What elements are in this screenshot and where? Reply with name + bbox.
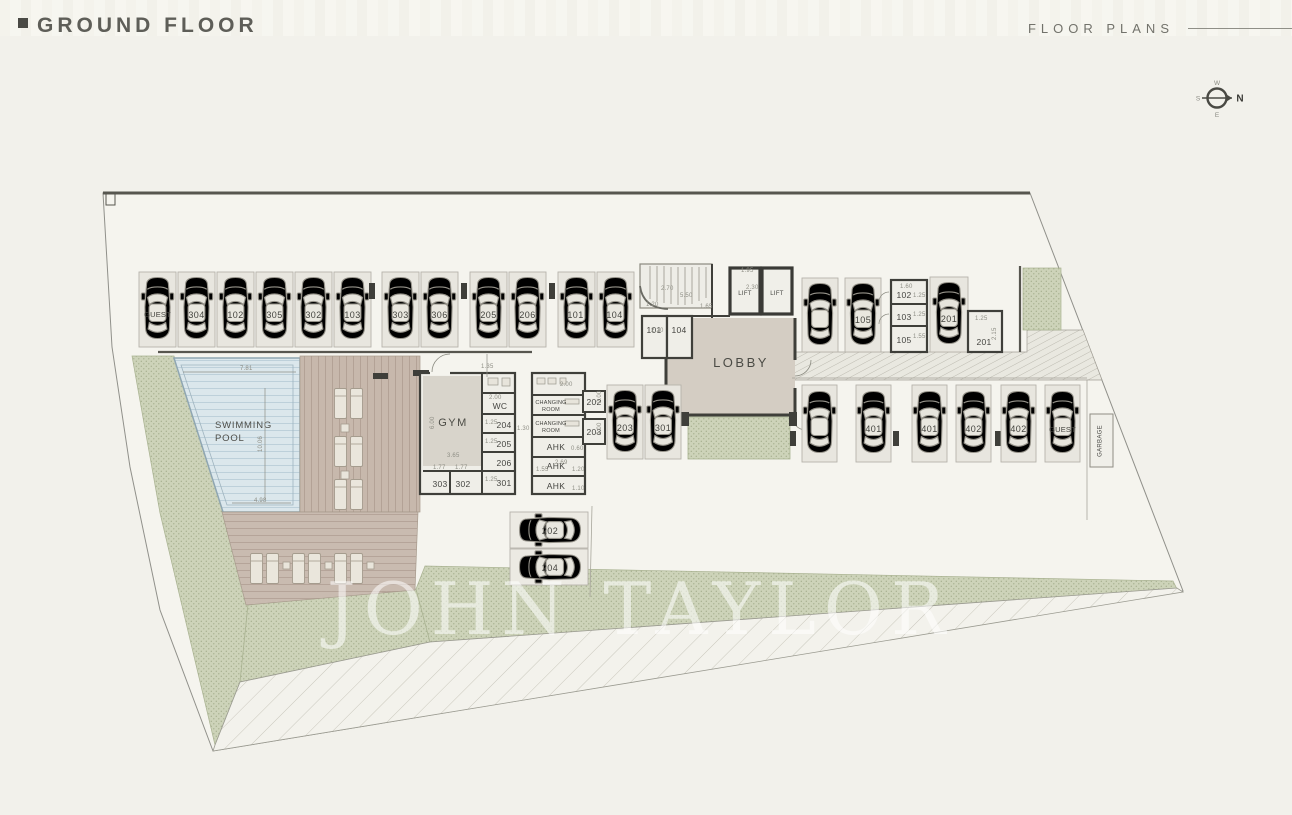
parking-spot: 402 (1001, 385, 1036, 462)
planter (1023, 268, 1061, 330)
parking-spot: 305 (256, 272, 293, 347)
svg-text:1.25: 1.25 (485, 420, 498, 426)
svg-text:2.20: 2.20 (651, 328, 664, 334)
svg-text:2.00: 2.00 (560, 382, 573, 388)
svg-text:5.50: 5.50 (680, 293, 693, 299)
parking-label: 306 (431, 310, 447, 320)
svg-text:6.00: 6.00 (430, 416, 436, 429)
svg-text:3.65: 3.65 (447, 453, 460, 459)
parking-row-top: GUEST 304 102 305 302 103 (139, 272, 634, 347)
svg-text:1.25: 1.25 (913, 312, 926, 318)
changing-room-label: CHANGING (535, 421, 566, 427)
wc-label: WC (493, 401, 508, 411)
parking-spot: GUEST (1045, 385, 1080, 462)
lift-label: LIFT (770, 291, 784, 297)
parking-label: 303 (392, 310, 408, 320)
parking-spot: 401 (912, 385, 947, 462)
svg-text:2.15: 2.15 (992, 327, 998, 340)
ahk-label: AHK (547, 442, 565, 452)
lobby-label: LOBBY (713, 355, 769, 370)
pillar (549, 283, 555, 299)
svg-text:10.06: 10.06 (258, 436, 264, 452)
parking-spot: 402 (956, 385, 991, 462)
changing-room-label: CHANGING (535, 400, 566, 406)
compass-e: E (1215, 112, 1220, 119)
lift-shafts: LIFT LIFT (730, 268, 792, 314)
gym-label: GYM (438, 417, 468, 429)
parking-spot: 301 (645, 385, 681, 459)
svg-text:1.25: 1.25 (913, 293, 926, 299)
storage-label: 303 (432, 479, 447, 489)
storage-label: 204 (496, 420, 511, 430)
svg-text:1.55: 1.55 (913, 334, 926, 340)
svg-text:2.00: 2.00 (597, 422, 603, 435)
lift-label: LIFT (738, 291, 752, 297)
lobby-planter (681, 412, 797, 459)
storage-label: 302 (455, 479, 470, 489)
svg-text:1.55: 1.55 (536, 467, 549, 473)
pillar (461, 283, 467, 299)
svg-text:7.81: 7.81 (240, 366, 253, 372)
storage-label: 103 (896, 312, 911, 322)
svg-text:1.30: 1.30 (517, 426, 530, 432)
parking-label: 201 (941, 314, 957, 324)
parking-spot: 102 (217, 272, 254, 347)
parking-spot: 205 (470, 272, 507, 347)
parking-label: 301 (655, 423, 671, 433)
svg-text:2.00: 2.00 (597, 390, 603, 403)
parking-label: 401 (865, 424, 881, 434)
parking-spot: 201 (930, 277, 968, 352)
svg-text:2.30: 2.30 (746, 285, 759, 291)
svg-text:2.69: 2.69 (555, 460, 568, 466)
compass-w: W (1214, 80, 1221, 87)
changing-room-label: ROOM (542, 407, 560, 413)
parking-label: 304 (188, 310, 204, 320)
storage-label: 201 (976, 337, 991, 347)
svg-text:1.35: 1.35 (481, 364, 494, 370)
parking-label: 205 (480, 310, 496, 320)
parking-label: 203 (617, 423, 633, 433)
storage-rooms-lobby: 101 104 (642, 316, 692, 358)
parking-spot: 202 (510, 512, 588, 548)
floor-plan-canvas: SWIMMING POOL GUEST (0, 0, 1292, 815)
parking-label: 206 (519, 310, 535, 320)
parking-label: 302 (305, 310, 321, 320)
svg-text:1.25: 1.25 (975, 316, 988, 322)
parking-spot: 306 (421, 272, 458, 347)
svg-text:1.25: 1.25 (485, 477, 498, 483)
parking-spot: 302 (295, 272, 332, 347)
svg-text:1.77: 1.77 (433, 465, 446, 471)
pillar (369, 283, 375, 299)
parking-label: 402 (965, 424, 981, 434)
changing-room-label: ROOM (542, 428, 560, 434)
svg-text:2.70: 2.70 (661, 286, 674, 292)
svg-text:1.60: 1.60 (900, 284, 913, 290)
storage-label: 105 (896, 335, 911, 345)
parking-label: 202 (542, 526, 558, 536)
parking-label: 102 (227, 310, 243, 320)
parking-label: 101 (567, 310, 583, 320)
parking-label: GUEST (144, 310, 171, 319)
pool-label-line1: SWIMMING (215, 420, 272, 431)
parking-spot: 304 (178, 272, 215, 347)
pool-label-line2: POOL (215, 433, 245, 444)
compass-s: S (1196, 96, 1201, 103)
storage-label: 102 (896, 290, 911, 300)
svg-text:4.98: 4.98 (254, 498, 267, 504)
parking-spot: 104 (597, 272, 634, 347)
svg-text:1.77: 1.77 (455, 465, 468, 471)
watermark: JOHN TAYLOR (320, 567, 953, 651)
parking-spot: 203 (607, 385, 643, 459)
parking-spot: 303 (382, 272, 419, 347)
pool-deck (300, 356, 429, 512)
parking-label: 305 (266, 310, 282, 320)
svg-text:2.00: 2.00 (489, 395, 502, 401)
parking-spot: GUEST (139, 272, 176, 347)
parking-spot: 103 (334, 272, 371, 347)
svg-text:1.65: 1.65 (700, 304, 713, 310)
svg-text:1.95: 1.95 (741, 268, 754, 274)
svg-text:1.20: 1.20 (646, 302, 659, 308)
svg-text:0.60: 0.60 (571, 446, 584, 452)
compass-icon: W N S E (1196, 80, 1244, 119)
parking-label: 103 (344, 310, 360, 320)
storage-label: 206 (496, 458, 511, 468)
parking-label: 401 (921, 424, 937, 434)
storage-label: 301 (496, 478, 511, 488)
garbage-label: GARBAGE (1098, 425, 1104, 457)
parking-spot: 206 (509, 272, 546, 347)
parking-label: GUEST (1049, 425, 1076, 434)
parking-spot: 401 (856, 385, 891, 462)
parking-label: 402 (1010, 424, 1026, 434)
svg-text:1.25: 1.25 (485, 439, 498, 445)
compass-n: N (1236, 94, 1243, 105)
parking-label: 104 (606, 310, 622, 320)
svg-text:1.20: 1.20 (572, 467, 585, 473)
parking-label: 105 (855, 315, 871, 325)
ahk-label: AHK (547, 481, 565, 491)
parking-spot: 105 (845, 278, 881, 352)
storage-label: 104 (671, 325, 686, 335)
parking-spot: 101 (558, 272, 595, 347)
storage-label: 205 (496, 439, 511, 449)
svg-text:1.10: 1.10 (572, 486, 585, 492)
